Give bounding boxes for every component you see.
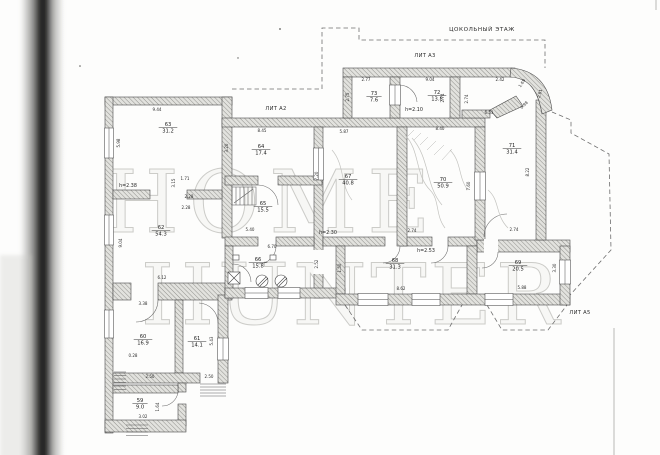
door-openings <box>484 239 498 253</box>
dimension-label: 2.75 <box>345 92 350 101</box>
dimension-label: 2.28 <box>182 205 191 210</box>
dimension-label: 6.70 <box>268 244 277 249</box>
room-area: 15.5 <box>257 208 269 214</box>
room-area: 15.8 <box>252 264 264 270</box>
room-number: 67 <box>345 174 352 180</box>
dimension-label: 6.12 <box>158 275 167 280</box>
dimension-label: 7.20 <box>314 171 319 180</box>
dimension-label: 9.04 <box>426 77 435 82</box>
ceiling-height-label: h=2.38 <box>119 183 137 189</box>
room-number: 59 <box>137 398 144 404</box>
dimension-label: 2.50 <box>146 374 155 379</box>
dimension-label: 5.98 <box>116 138 121 147</box>
liter-label: ЛИТ А3 <box>414 53 435 59</box>
walls <box>467 246 477 294</box>
room-area: 16.9 <box>137 341 149 347</box>
room-area: 9.0 <box>136 405 144 411</box>
ceiling-height-label: h=2.53 <box>417 248 435 254</box>
dimension-label: 2.77 <box>362 77 371 82</box>
room-area: 50.9 <box>437 184 449 190</box>
dimension-label: 2.74 <box>440 93 445 102</box>
walls <box>175 300 183 373</box>
room-area: 31.3 <box>389 265 401 271</box>
walls <box>105 97 232 105</box>
walls <box>225 176 258 185</box>
scan-speck <box>79 65 81 67</box>
dimension-label: 3.02 <box>139 414 148 419</box>
room-area: 40.8 <box>342 181 354 187</box>
dimension-label: 1.71 <box>181 176 190 181</box>
dimension-label: 2.74 <box>464 94 469 103</box>
dimension-label: 1.64 <box>155 402 160 411</box>
vent-symbol <box>270 255 276 260</box>
room-area: 14.1 <box>191 343 203 349</box>
walls <box>225 237 258 246</box>
walls <box>397 127 407 246</box>
dimension-label: 9.44 <box>153 107 162 112</box>
vent-symbol <box>233 255 239 260</box>
room-area: 31.2 <box>162 129 174 135</box>
room-area: 31.4 <box>506 150 518 156</box>
dimension-label: 2.42 <box>496 77 505 82</box>
room-area: 7.6 <box>370 98 378 104</box>
room-number: 64 <box>258 144 265 150</box>
room-number: 62 <box>158 225 165 231</box>
dimension-label: 9.04 <box>118 238 123 247</box>
scan-pale-band <box>0 255 32 455</box>
room-number: 71 <box>509 143 516 149</box>
room-area: 20.5 <box>512 267 524 273</box>
dimension-label: 3.30 <box>552 263 557 272</box>
walls <box>222 118 485 127</box>
ceiling-height-label: h=2.30 <box>319 230 337 236</box>
walls <box>178 383 186 392</box>
dimension-label: 7.60 <box>466 181 471 190</box>
room-number: 61 <box>194 336 201 342</box>
walls <box>113 283 131 300</box>
dimension-label: 8.22 <box>525 167 530 176</box>
walls <box>276 237 314 246</box>
room-number: 73 <box>371 91 378 97</box>
walls <box>536 100 546 240</box>
dimension-label: 6.53 <box>485 110 494 115</box>
dimension-label: 2.28 <box>185 194 194 199</box>
room-number: 68 <box>392 258 399 264</box>
walls <box>323 237 385 246</box>
floor-title: ЦОКОЛЬНЫЙ ЭТАЖ <box>449 26 515 33</box>
dimension-label: 1.50 <box>337 263 342 272</box>
liter-label: ЛИТ А2 <box>265 106 286 112</box>
dimension-label: 2.74 <box>408 228 417 233</box>
dimension-label: 5.43 <box>209 336 214 345</box>
floorplan-drawing: HOME HUNTER <box>0 0 660 455</box>
walls <box>448 237 477 246</box>
room-number: 63 <box>165 122 172 128</box>
dimension-label: 5.87 <box>340 129 349 134</box>
dimension-label: 2.52 <box>314 259 319 268</box>
dimension-label: 3.15 <box>171 178 176 187</box>
walls <box>343 68 515 77</box>
room-number: 69 <box>515 260 522 266</box>
dimension-label: 5.88 <box>518 285 527 290</box>
dimension-label: 2.50 <box>205 374 214 379</box>
dimension-label: 5.40 <box>246 227 255 232</box>
room-area: 54.3 <box>155 232 167 238</box>
room-number: 70 <box>440 177 447 183</box>
dimension-label: 8.40 <box>436 126 445 131</box>
dimension-label: 8.62 <box>397 286 406 291</box>
walls <box>113 373 200 383</box>
liter-label: ЛИТ А5 <box>569 310 590 316</box>
dimension-label: 3.20 <box>224 143 229 152</box>
room-number: 60 <box>140 334 147 340</box>
room-area: 17.4 <box>255 151 267 157</box>
dimension-label: 0.28 <box>129 353 138 358</box>
dimension-label: 3.38 <box>139 301 148 306</box>
scan-speck <box>237 57 238 58</box>
scan-speck <box>279 28 281 30</box>
walls <box>105 420 186 432</box>
dimension-label: 2.74 <box>510 227 519 232</box>
room-number: 65 <box>260 201 267 207</box>
dimension-label: 8.45 <box>258 128 267 133</box>
walls <box>113 190 150 199</box>
room-number: 66 <box>255 257 262 263</box>
watermark-word-home: HOME <box>104 153 440 253</box>
ceiling-height-label: h=2.10 <box>405 107 423 113</box>
scanned-floorplan-page: HOME HUNTER <box>0 0 660 455</box>
walls <box>450 77 460 118</box>
